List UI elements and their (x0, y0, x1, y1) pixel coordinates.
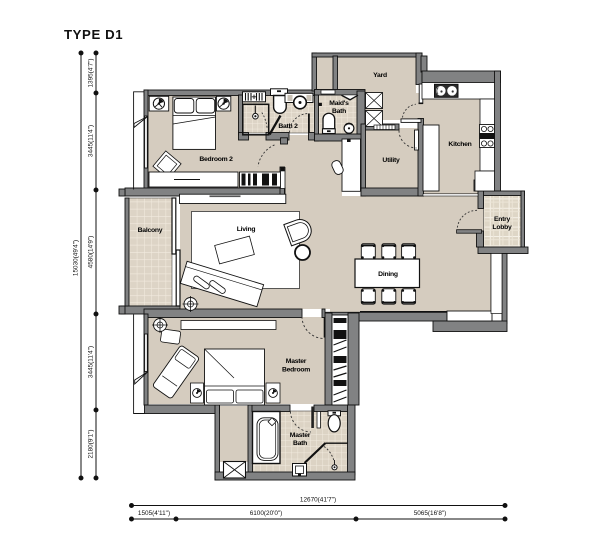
svg-text:Bath 2: Bath 2 (278, 123, 298, 130)
svg-text:Bath: Bath (332, 108, 346, 115)
svg-text:Master: Master (290, 432, 311, 439)
svg-text:Living: Living (237, 226, 256, 233)
svg-text:Lobby: Lobby (492, 224, 512, 231)
svg-text:1505(4'11"): 1505(4'11") (138, 510, 170, 517)
svg-text:12670(41'7"): 12670(41'7") (300, 497, 336, 504)
svg-text:Bedroom: Bedroom (282, 367, 310, 374)
svg-text:Utility: Utility (382, 157, 400, 164)
svg-text:Dining: Dining (378, 271, 398, 278)
svg-text:6100(20'0"): 6100(20'0") (250, 510, 283, 517)
svg-text:Balcony: Balcony (138, 227, 163, 234)
svg-text:15030(49'4"): 15030(49'4") (72, 240, 79, 276)
svg-text:Yard: Yard (373, 72, 387, 79)
svg-text:Bedroom 2: Bedroom 2 (199, 156, 233, 163)
svg-text:Master: Master (286, 358, 307, 365)
svg-text:2180(9'1"): 2180(9'1") (87, 429, 94, 458)
svg-text:TYPE D1: TYPE D1 (64, 27, 123, 42)
svg-text:Bath: Bath (293, 440, 307, 447)
svg-text:Maid's: Maid's (329, 100, 349, 107)
svg-text:Entry: Entry (494, 216, 511, 223)
svg-text:3445(11'4"): 3445(11'4") (87, 125, 94, 157)
svg-text:5065(16'8"): 5065(16'8") (414, 510, 447, 517)
svg-text:4580(14'9"): 4580(14'9") (87, 236, 94, 269)
svg-text:1395(4'7"): 1395(4'7") (87, 58, 94, 87)
svg-text:Kitchen: Kitchen (448, 141, 471, 148)
svg-text:3445(11'4"): 3445(11'4") (87, 346, 94, 378)
